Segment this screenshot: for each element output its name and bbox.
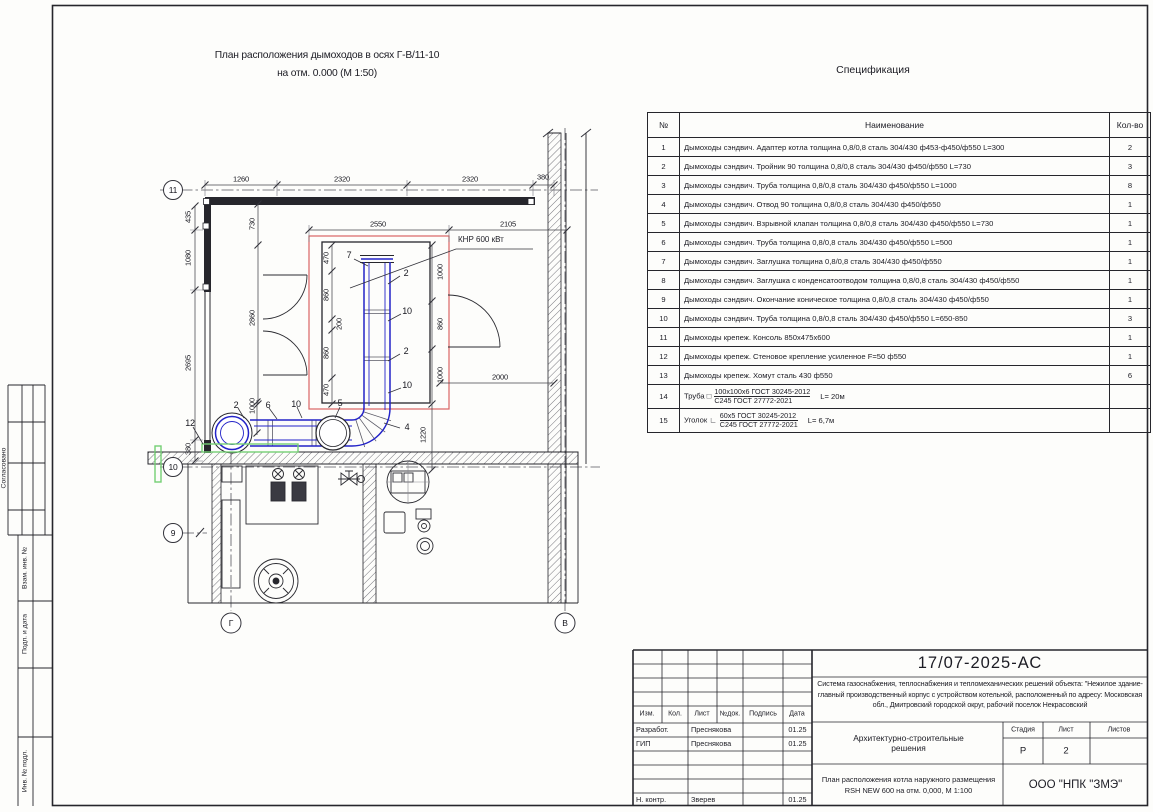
spec-row: 14 Труба □100х100х6 ГОСТ 30245-2012С245 … [648,385,1151,409]
frac-length: L= 6,7м [808,416,835,425]
section-name: Архитектурно-строительные решения [814,722,1003,764]
boiler-label: КНР 600 кВт [458,235,504,244]
frac-prefix: Уголок ∟ [684,416,717,425]
spec-row: 4 Дымоходы сэндвич. Отвод 90 толщина 0,8… [648,195,1151,214]
spec-frac-rows: 14 Труба □100х100х6 ГОСТ 30245-2012С245 … [648,385,1151,433]
axis-bubble-label: 11 [169,185,177,195]
spec-cell-num: 13 [648,366,680,385]
col-podpis: Подпись [749,711,777,718]
item-label: 7 [347,250,352,260]
spec-row: 5 Дымоходы сэндвич. Взрывной клапан толщ… [648,214,1151,233]
spec-cell-qty: 1 [1110,328,1151,347]
sheet-name-line1: План расположения котла наружного размещ… [822,774,995,785]
dim-label: 860 [436,318,445,330]
spec-row: 10 Дымоходы сэндвич. Труба толщина 0,8/0… [648,309,1151,328]
left-margin-boxes [8,385,52,806]
spec-row: 7 Дымоходы сэндвич. Заглушка толщина 0,8… [648,252,1151,271]
dim-label: 1220 [419,427,428,443]
dim-label: 2320 [462,175,478,184]
dim-label: 2695 [184,355,193,371]
col-kol: Кол. [668,711,682,718]
spec-cell-qty: 3 [1110,157,1151,176]
spec-cell-num: 11 [648,328,680,347]
signature-row: Разработ. Преснякова 01.25 [633,723,812,737]
spec-cell-name: Дымоходы крепеж. Стеновое крепление усил… [680,347,1110,366]
spec-col-qty: Кол-во [1110,113,1151,138]
item-label: 12 [185,418,195,428]
spec-cell-qty: 1 [1110,195,1151,214]
sheet-header: Лист [1058,727,1073,734]
spec-cell-name: Дымоходы сэндвич. Труба толщина 0,8/0,8 … [680,233,1110,252]
dim-label: 200 [335,318,344,330]
frac-bottom: С245 ГОСТ 27772-2021 [714,397,810,405]
door-arcs [263,275,500,375]
spec-row: 12 Дымоходы крепеж. Стеновое крепление у… [648,347,1151,366]
dim-label: 2000 [492,373,508,382]
spec-cell-name: Дымоходы сэндвич. Труба толщина 0,8/0,8 … [680,176,1110,195]
col-data: Дата [789,711,805,718]
sheet-name: План расположения котла наружного размещ… [814,766,1003,804]
spec-cell-qty: 1 [1110,252,1151,271]
item-label: 5 [338,398,343,408]
axis-bubble-label: 10 [168,462,177,472]
leader-lines [193,249,533,444]
spec-cell-qty: 1 [1110,290,1151,309]
spec-cell-num: 4 [648,195,680,214]
stamp-soglasovano: Согласовано [1,448,8,489]
spec-cell-qty [1110,385,1151,409]
spec-cell-num: 3 [648,176,680,195]
spec-row: 3 Дымоходы сэндвич. Труба толщина 0,8/0,… [648,176,1151,195]
spec-cell-num: 10 [648,309,680,328]
item-label: 6 [266,400,271,410]
spec-cell-name: Уголок ∟60х5 ГОСТ 30245-2012С245 ГОСТ 27… [680,409,1110,433]
signature-row: Н. контр. Зверев 01.25 [633,792,812,806]
signature-rows: Разработ. Преснякова 01.25 ГИП Пресняков… [633,723,812,806]
spec-cell-num: 2 [648,157,680,176]
person-name: Преснякова [688,725,743,734]
stamp-inv-podl: Инв. № подл. [22,750,29,792]
spec-cell-qty: 3 [1110,309,1151,328]
spec-col-num: № [648,113,680,138]
dim-label: 860 [322,347,331,359]
axis-bubble-label: Г [229,618,233,628]
dim-label: 1000 [436,264,445,280]
spec-row: 8 Дымоходы сэндвич. Заглушка с конденсат… [648,271,1151,290]
spec-cell-name: Дымоходы сэндвич. Заглушка толщина 0,8/0… [680,252,1110,271]
spec-cell-qty: 8 [1110,176,1151,195]
spec-col-name: Наименование [680,113,1110,138]
doc-code: 17/07-2025-АС [814,651,1146,676]
item-label: 2 [404,346,409,356]
walls [148,133,586,603]
pipe-outline [216,259,394,450]
spec-cell-name: Дымоходы сэндвич. Заглушка с конденсатоо… [680,271,1110,290]
item-label: 10 [402,306,412,316]
dim-label: 1000 [436,367,445,383]
spec-cell-qty: 6 [1110,366,1151,385]
spec-cell-name: Дымоходы сэндвич. Окончание коническое т… [680,290,1110,309]
plan-title-line2: на отм. 0.000 (М 1:50) [167,68,487,79]
sheets-header: Листов [1108,727,1131,734]
stamp-vzam-inv: Взам. инв. № [22,547,29,589]
spec-cell-num: 15 [648,409,680,433]
sheet-name-line2: RSH NEW 600 на отм. 0,000, М 1:100 [845,785,972,796]
frac-stack: 100х100х6 ГОСТ 30245-2012С245 ГОСТ 27772… [714,388,810,405]
spec-cell-qty [1110,409,1151,433]
item-label: 2 [234,400,239,410]
item-label: 4 [405,422,410,432]
spec-cell-num: 9 [648,290,680,309]
spec-title: Спецификация [788,64,958,76]
spec-row: 15 Уголок ∟60х5 ГОСТ 30245-2012С245 ГОСТ… [648,409,1151,433]
spec-cell-name: Дымоходы сэндвич. Адаптер котла толщина … [680,138,1110,157]
person-date: 01.25 [783,739,812,748]
axis-bubble-label: 9 [171,528,176,538]
person-name: Преснякова [688,739,743,748]
stage-header: Стадия [1011,727,1035,734]
spec-cell-num: 6 [648,233,680,252]
spec-cell-num: 8 [648,271,680,290]
axis-bubble-label: В [562,618,567,628]
dim-label: 2860 [248,310,257,326]
col-ndok: №док. [720,711,741,718]
dim-label: 860 [322,289,331,301]
person-role: ГИП [633,739,688,748]
spec-cell-qty: 1 [1110,233,1151,252]
spec-cell-qty: 2 [1110,138,1151,157]
plan-title-line1: План расположения дымоходов в осях Г-В/1… [167,50,487,61]
item-label: 10 [291,399,301,409]
col-izm: Изм. [640,711,655,718]
dim-label: 380 [184,443,193,455]
spec-cell-num: 14 [648,385,680,409]
item-label: 10 [402,380,412,390]
spec-cell-name: Дымоходы крепеж. Консоль 850х475х600 [680,328,1110,347]
dim-label: 730 [248,218,257,230]
signature-row [633,764,812,778]
frac-bottom: С245 ГОСТ 27772-2021 [720,421,798,429]
spec-row: 1 Дымоходы сэндвич. Адаптер котла толщин… [648,138,1151,157]
spec-cell-name: Дымоходы сэндвич. Отвод 90 толщина 0,8/0… [680,195,1110,214]
spec-cell-name: Дымоходы сэндвич. Тройник 90 толщина 0,8… [680,157,1110,176]
spec-cell-num: 7 [648,252,680,271]
dim-label: 380 [537,173,549,182]
dim-label: 470 [322,384,331,396]
equipment [222,460,433,603]
person-role: Н. контр. [633,795,688,804]
spec-cell-name: Дымоходы сэндвич. Взрывной клапан толщин… [680,214,1110,233]
project-description: Система газоснабжения, теплоснабжения и … [815,679,1145,721]
spec-cell-qty: 1 [1110,214,1151,233]
col-list: Лист [694,711,709,718]
spec-table: № Наименование Кол-во 1 Дымоходы сэндвич… [647,112,1151,433]
spec-row: 9 Дымоходы сэндвич. Окончание коническое… [648,290,1151,309]
dim-label: 470 [322,252,331,264]
explosion-valve-circle [316,416,350,450]
spec-body: 1 Дымоходы сэндвич. Адаптер котла толщин… [648,138,1151,385]
spec-cell-name: Дымоходы сэндвич. Труба толщина 0,8/0,8 … [680,309,1110,328]
signature-row [633,751,812,765]
spec-cell-name: Дымоходы крепеж. Хомут сталь 430 ф550 [680,366,1110,385]
frac-stack: 60х5 ГОСТ 30245-2012С245 ГОСТ 27772-2021 [720,412,798,429]
frac-length: L= 20м [820,392,844,401]
spec-cell-name: Труба □100х100х6 ГОСТ 30245-2012С245 ГОС… [680,385,1110,409]
spec-cell-num: 5 [648,214,680,233]
company-name: ООО "НПК "ЗМЭ" [1004,766,1147,804]
dim-label: 2550 [370,220,386,229]
dim-label: 1080 [184,250,193,266]
dim-label: 435 [184,211,193,223]
spec-cell-num: 12 [648,347,680,366]
stamp-podp-data: Подп. и дата [22,614,29,654]
spec-header: № Наименование Кол-во [648,113,1151,138]
spec-row: 13 Дымоходы крепеж. Хомут сталь 430 ф550… [648,366,1151,385]
section-name-text: Архитектурно-строительные решения [839,733,979,753]
dim-label: 1000 [248,398,257,414]
sheet-value: 2 [1063,746,1068,757]
person-role: Разработ. [633,725,688,734]
spec-row: 2 Дымоходы сэндвич. Тройник 90 толщина 0… [648,157,1151,176]
item-label: 2 [404,268,409,278]
flue-end-cap [212,413,252,453]
person-date: 01.25 [783,725,812,734]
dim-label: 1260 [233,175,249,184]
dim-label: 2105 [500,220,516,229]
frac-prefix: Труба □ [684,392,711,401]
spec-cell-qty: 1 [1110,271,1151,290]
spec-row: 6 Дымоходы сэндвич. Труба толщина 0,8/0,… [648,233,1151,252]
person-date: 01.25 [783,795,812,804]
stage-value: Р [1020,746,1026,757]
signature-row: ГИП Преснякова 01.25 [633,737,812,751]
spec-cell-num: 1 [648,138,680,157]
signature-row [633,778,812,792]
person-name: Зверев [688,795,743,804]
spec-cell-qty: 1 [1110,347,1151,366]
dim-label: 2320 [334,175,350,184]
spec-row: 11 Дымоходы крепеж. Консоль 850х475х600 … [648,328,1151,347]
